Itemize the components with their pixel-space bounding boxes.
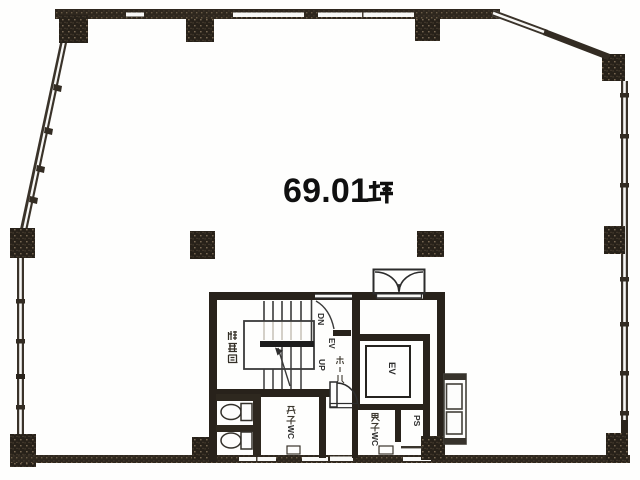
svg-text:UP: UP xyxy=(317,359,327,371)
svg-text:EV: EV xyxy=(386,362,397,375)
svg-text:WC: WC xyxy=(286,425,296,439)
svg-text:DN: DN xyxy=(316,313,326,325)
svg-text:WC: WC xyxy=(370,432,380,446)
svg-text:PS: PS xyxy=(412,415,422,427)
svg-text:EV: EV xyxy=(327,338,336,349)
svg-text:69.01: 69.01 xyxy=(283,172,369,210)
